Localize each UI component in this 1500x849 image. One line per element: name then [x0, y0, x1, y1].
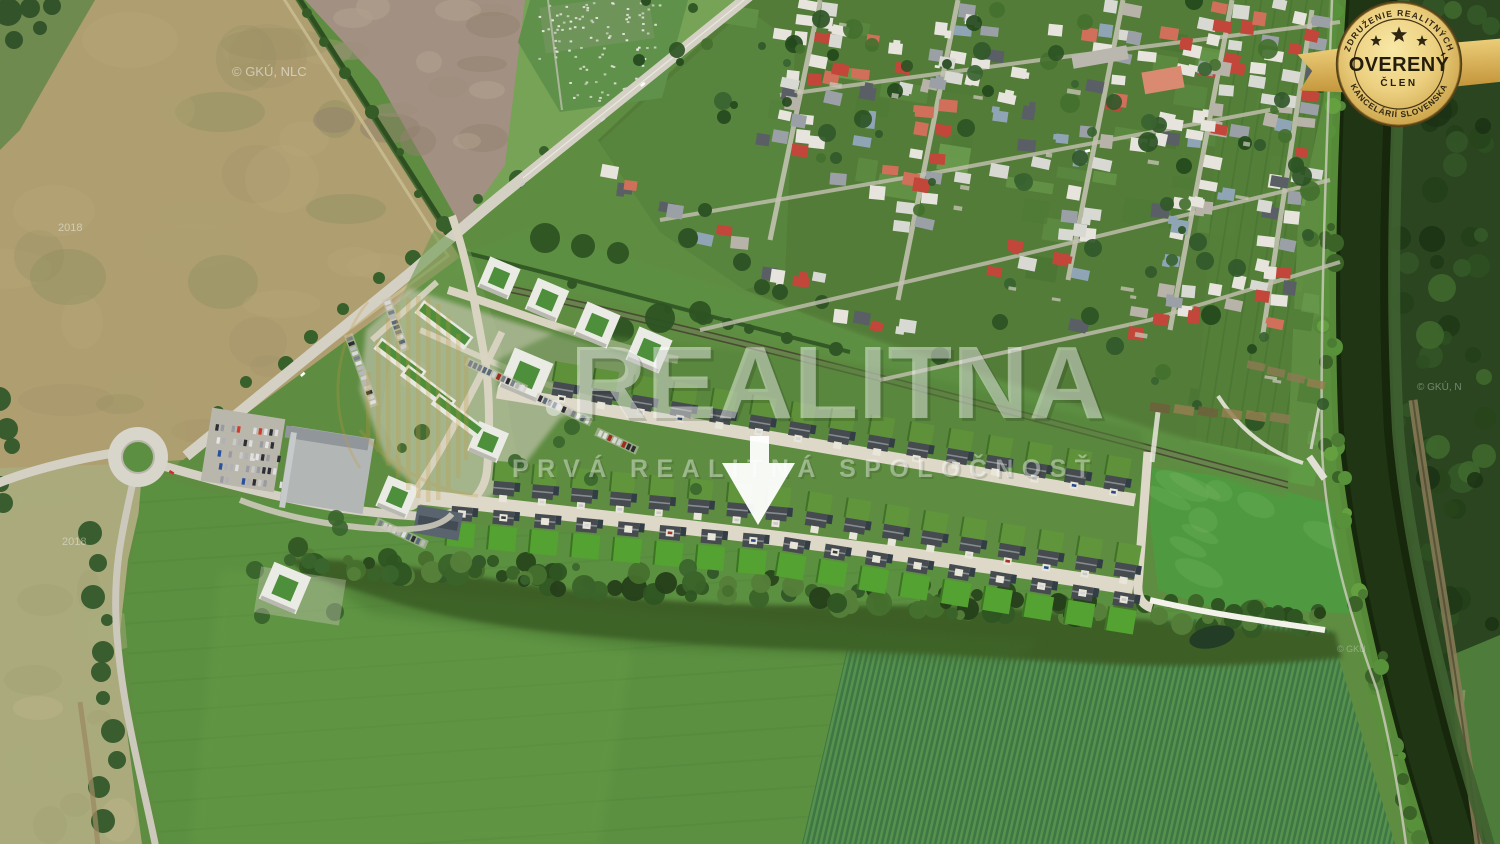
svg-text:© GKÚ, NLC: © GKÚ, NLC: [232, 64, 307, 79]
svg-text:REALITNA: REALITNA: [570, 325, 1105, 440]
svg-text:OVERENÝ: OVERENÝ: [1349, 52, 1450, 76]
svg-text:2018: 2018: [58, 222, 82, 234]
svg-text:ČLEN: ČLEN: [1380, 76, 1417, 89]
svg-text:© GKÚ: © GKÚ: [1337, 644, 1366, 654]
svg-text:PRVÁ REALITNÁ SPOLOČNOSŤ: PRVÁ REALITNÁ SPOLOČNOSŤ: [512, 453, 1090, 483]
svg-text:2018: 2018: [62, 536, 86, 548]
svg-text:© GKÚ, N: © GKÚ, N: [1417, 380, 1462, 393]
